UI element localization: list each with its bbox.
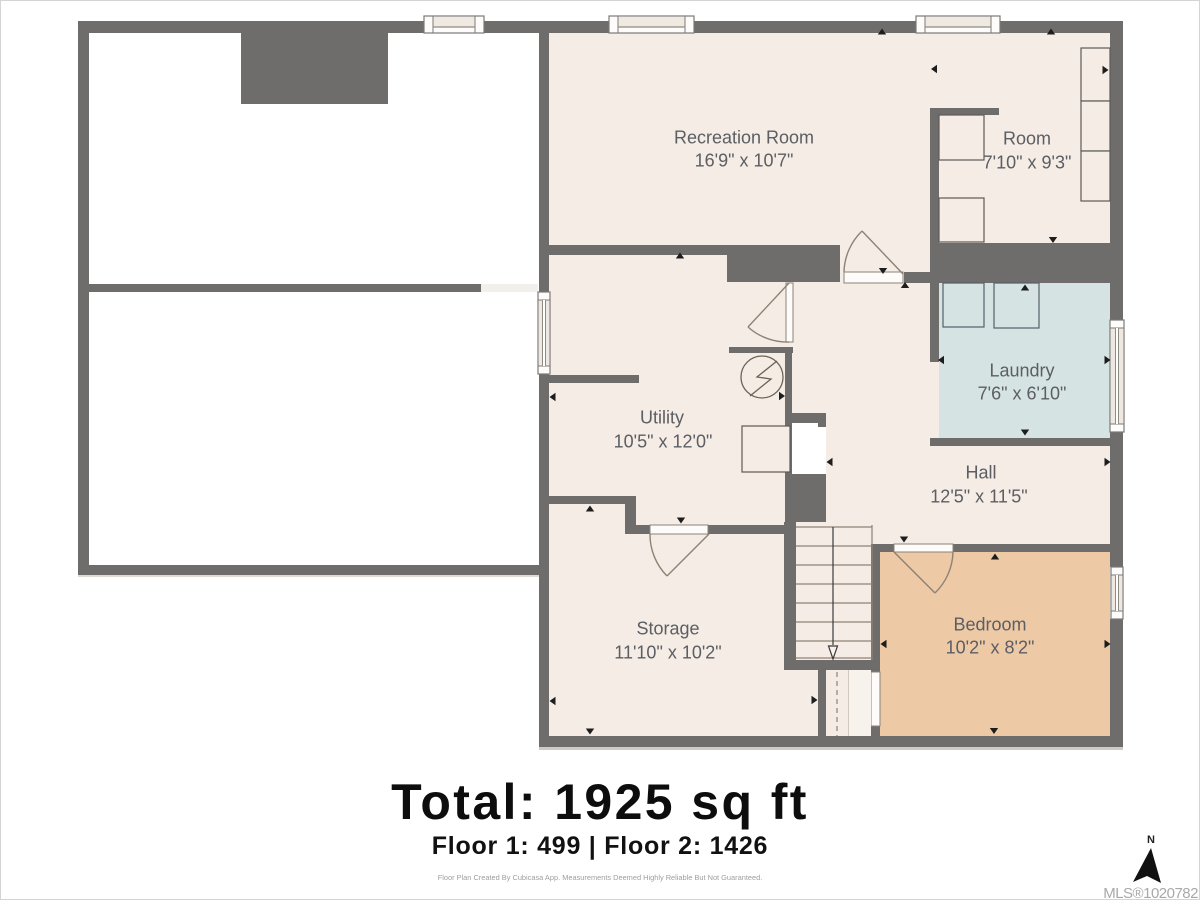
svg-text:Utility: Utility — [640, 408, 684, 428]
svg-text:Floor Plan Created By Cubicasa: Floor Plan Created By Cubicasa App. Meas… — [438, 873, 763, 882]
svg-text:12'5" x 11'5": 12'5" x 11'5" — [930, 487, 1027, 507]
svg-text:7'10" x 9'3": 7'10" x 9'3" — [983, 153, 1072, 173]
svg-text:16'9" x 10'7": 16'9" x 10'7" — [695, 151, 794, 171]
svg-text:Recreation Room: Recreation Room — [674, 128, 814, 148]
svg-text:10'5" x 12'0": 10'5" x 12'0" — [614, 432, 713, 452]
svg-text:MLS®1020782: MLS®1020782 — [1103, 885, 1198, 900]
svg-text:10'2" x 8'2": 10'2" x 8'2" — [946, 638, 1035, 658]
svg-text:Floor 1: 499 | Floor 2: 1426: Floor 1: 499 | Floor 2: 1426 — [432, 832, 768, 860]
svg-text:7'6" x 6'10": 7'6" x 6'10" — [978, 384, 1067, 404]
svg-text:Room: Room — [1003, 129, 1051, 149]
svg-text:N: N — [1147, 834, 1155, 846]
svg-text:Bedroom: Bedroom — [953, 615, 1026, 635]
svg-text:Hall: Hall — [965, 463, 996, 483]
svg-text:11'10" x 10'2": 11'10" x 10'2" — [614, 643, 721, 663]
svg-text:Total: 1925 sq ft: Total: 1925 sq ft — [391, 774, 809, 830]
svg-text:Storage: Storage — [636, 619, 699, 639]
svg-text:Laundry: Laundry — [989, 361, 1054, 381]
